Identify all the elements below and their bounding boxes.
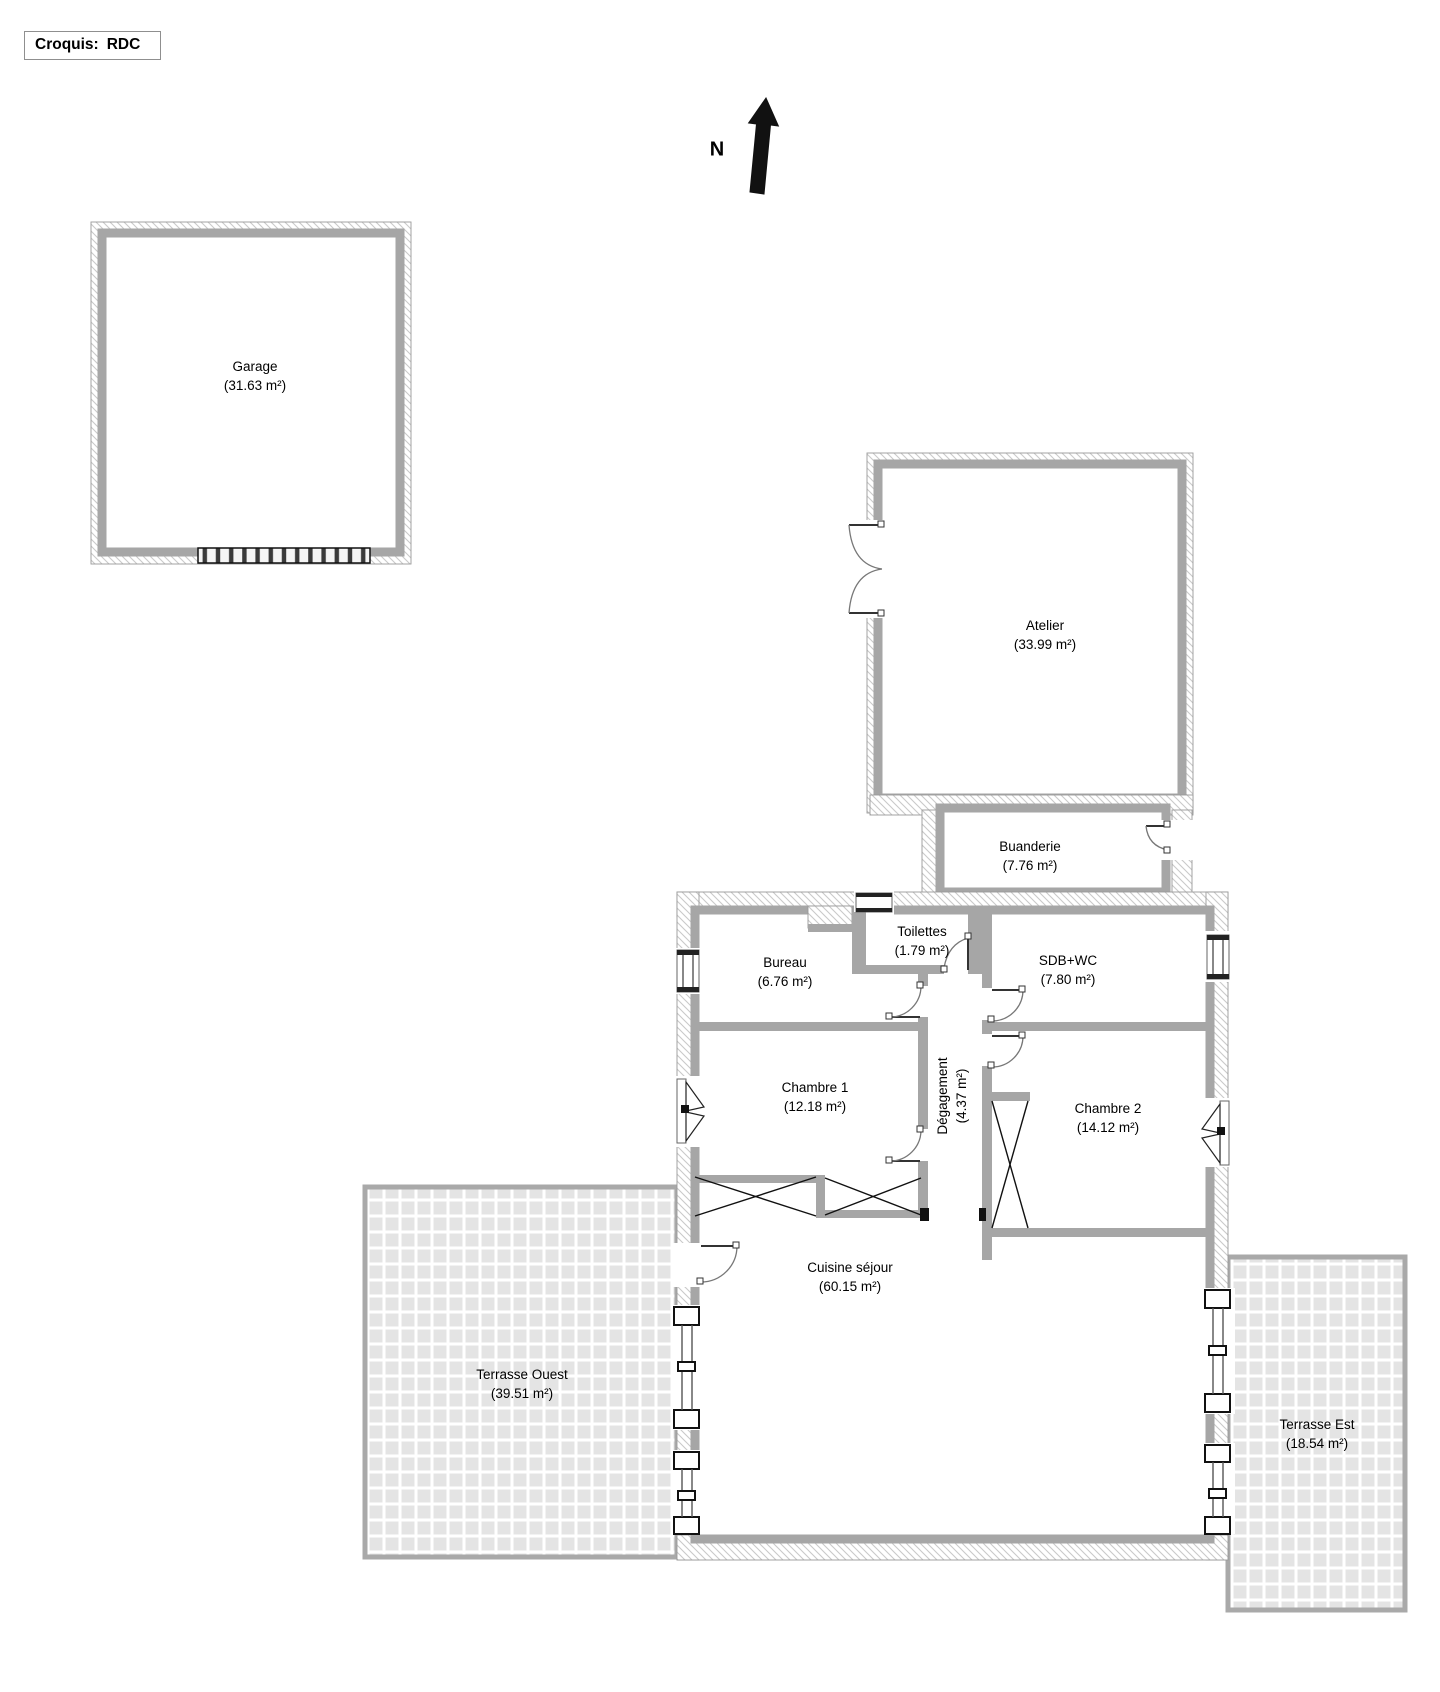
room-label-atelier: Atelier (33.99 m²) — [1014, 616, 1076, 654]
room-label-toilettes: Toilettes (1.79 m²) — [895, 922, 950, 960]
room-label-chambre1: Chambre 1 (12.18 m²) — [782, 1078, 849, 1116]
room-label-degagement: Dégagement (4.37 m²) — [933, 1057, 971, 1134]
cuisine-east-bay-window-1 — [1205, 1290, 1230, 1412]
room-label-terrasse-est: Terrasse Est (18.54 m²) — [1279, 1415, 1354, 1453]
plan-title-value: RDC — [107, 36, 141, 53]
plan-title: Croquis:RDC — [24, 31, 161, 60]
cuisine-west-bay-window-1 — [674, 1307, 699, 1428]
garage-door — [198, 548, 370, 563]
room-label-bureau: Bureau (6.76 m²) — [758, 953, 813, 991]
sdb-window — [1207, 935, 1229, 979]
room-label-garage: Garage (31.63 m²) — [224, 357, 286, 395]
toilettes-window — [856, 893, 892, 912]
floorplan-canvas: Croquis:RDC N Garage (31.63 m²) Atelier … — [0, 0, 1440, 1692]
room-label-terrasse-ouest: Terrasse Ouest (39.51 m²) — [476, 1365, 568, 1403]
cuisine-west-bay-window-2 — [674, 1452, 699, 1534]
main-house-shell — [677, 892, 1228, 1560]
cuisine-east-bay-window-2 — [1205, 1445, 1230, 1534]
room-label-sdb: SDB+WC (7.80 m²) — [1039, 951, 1097, 989]
floorplan-drawing — [0, 0, 1440, 1692]
room-label-chambre2: Chambre 2 (14.12 m²) — [1075, 1099, 1142, 1137]
room-label-cuisine: Cuisine séjour (60.15 m²) — [807, 1258, 893, 1296]
north-label: N — [710, 139, 724, 162]
room-label-buanderie: Buanderie (7.76 m²) — [999, 837, 1061, 875]
north-arrow-icon — [749, 98, 779, 194]
plan-title-label: Croquis: — [35, 36, 99, 53]
bureau-window — [677, 950, 699, 992]
